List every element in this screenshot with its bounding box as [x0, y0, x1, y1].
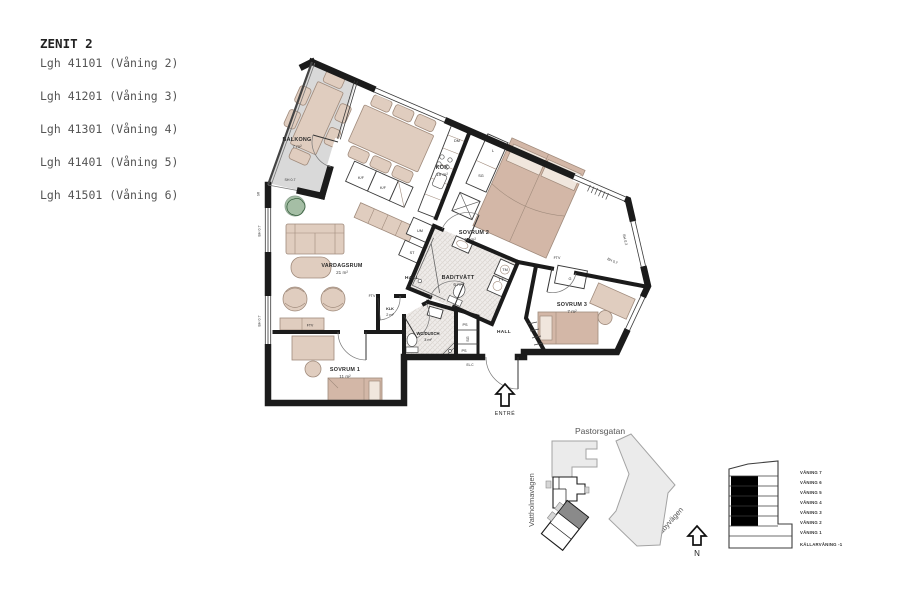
room-label-vardagsrum: VARDAGSRUM: [321, 263, 363, 269]
subject-building-block: [552, 441, 597, 477]
fixture-label-dm: DM: [454, 139, 460, 143]
fixture-label-g: G: [569, 277, 572, 281]
floor-label: VÅNING 2: [800, 520, 822, 525]
fixture-label-elc: EL.C: [466, 363, 474, 367]
window-label-bh: BH 0.2: [622, 234, 628, 246]
bed-sovrum3: [538, 312, 598, 344]
room-area-vardagsrum: 21 m²: [336, 270, 348, 275]
room-label-sovrum2: SOVRUM 2: [459, 230, 489, 236]
bed-sovrum1: [328, 378, 382, 403]
site-plan: Pastorsgatan Vattholmavägen Råbyvägen: [527, 426, 706, 558]
fixture-label-sg: SG: [478, 174, 484, 178]
section-highlighted-floors: [731, 476, 758, 526]
fixture-label-ftv: FTV: [307, 324, 314, 328]
fixture-label-tm: TM: [502, 268, 507, 272]
floor-label: VÅNING 4: [800, 500, 822, 505]
room-area-klk: 2 m²: [386, 313, 394, 317]
fixture-label-kf: K/F: [380, 186, 387, 190]
room-area-sovrum2: 13 m²: [464, 237, 476, 242]
plant-icon: [285, 196, 305, 216]
sofa: [286, 224, 344, 254]
floor-label: KÄLLARVÅNING -1: [800, 542, 843, 547]
room-label-kok: KÖK: [436, 164, 449, 171]
north-label: N: [694, 549, 700, 558]
floor-plan: BALKONG 7 m² KÖK 19 m² SOVRUM 2 13 m² VA…: [257, 62, 649, 417]
subject-building-units: [537, 477, 589, 550]
tv-bench: [280, 318, 324, 330]
room-label-balkong: BALKONG: [282, 137, 311, 143]
window-label-bh: BH 0.7: [258, 316, 262, 327]
drawing-sheet: ZENIT 2 Lgh 41101 (Våning 2) Lgh 41201 (…: [0, 0, 900, 600]
fixture-label-sg2: SG: [466, 336, 470, 342]
room-area-wcdusch: 3 m²: [424, 338, 432, 342]
room-label-hall-upper: HALL: [405, 275, 419, 281]
entrance-arrow-icon: [496, 384, 514, 406]
room-label-sovrum3: SOVRUM 3: [557, 302, 587, 308]
room-label-wcdusch: WC/DUSCH: [416, 331, 439, 336]
floor-label: VÅNING 5: [800, 490, 822, 495]
fixture-label-ftv: FTV: [369, 294, 376, 298]
fixture-label-um: UM: [417, 229, 423, 233]
desk-sovrum1: [292, 336, 334, 377]
floor-label: VÅNING 3: [800, 510, 822, 515]
floor-label: VÅNING 1: [800, 530, 822, 535]
pantry-shaft: [452, 192, 480, 219]
fixture-label-st: ST: [410, 251, 416, 255]
room-area-sovrum3: 7 m²: [567, 309, 577, 314]
room-area-balkong: 7 m²: [292, 144, 302, 149]
fixture-label-sr: SR: [257, 191, 261, 196]
fixture-label-ftv: FTV: [554, 256, 561, 260]
room-label-badtvatt: BAD/TVÄTT: [442, 274, 475, 281]
fixture-label-kf: K/F: [358, 176, 365, 180]
floor-label: VÅNING 6: [800, 480, 822, 485]
window-label-bh: BH 0.7: [258, 226, 262, 237]
floor-label: VÅNING 7: [800, 470, 822, 475]
room-area-badtvatt: 6 m²: [453, 282, 463, 287]
room-label-klk: KLK: [386, 307, 394, 311]
fixture-label-ps: PS: [461, 349, 467, 353]
fixture-label-tt: TT: [499, 278, 504, 282]
armchair: [283, 287, 307, 311]
section-diagram: VÅNING 7 VÅNING 6 VÅNING 5 VÅNING 4 VÅNI…: [729, 461, 843, 548]
room-area-sovrum1: 11 m²: [339, 374, 351, 379]
room-area-kok: 19 m²: [436, 172, 448, 177]
drawing-canvas: BALKONG 7 m² KÖK 19 m² SOVRUM 2 13 m² VA…: [0, 0, 900, 600]
room-label-sovrum1: SOVRUM 1: [330, 367, 360, 373]
sideboard: [354, 203, 415, 242]
street-label-west: Vattholmavägen: [527, 473, 536, 527]
armchair: [321, 287, 345, 311]
entrance-label: ENTRÉ: [495, 410, 516, 417]
fixture-label-l: L: [492, 149, 494, 153]
window-label-sh: SH 0.7: [285, 178, 296, 182]
street-label-north: Pastorsgatan: [575, 426, 625, 436]
fixture-label-ps: PS: [462, 323, 468, 327]
north-arrow-icon: [688, 526, 706, 545]
window-label-bh: BH 0.7: [607, 257, 619, 265]
room-label-hall-lower: HALL: [497, 329, 511, 335]
